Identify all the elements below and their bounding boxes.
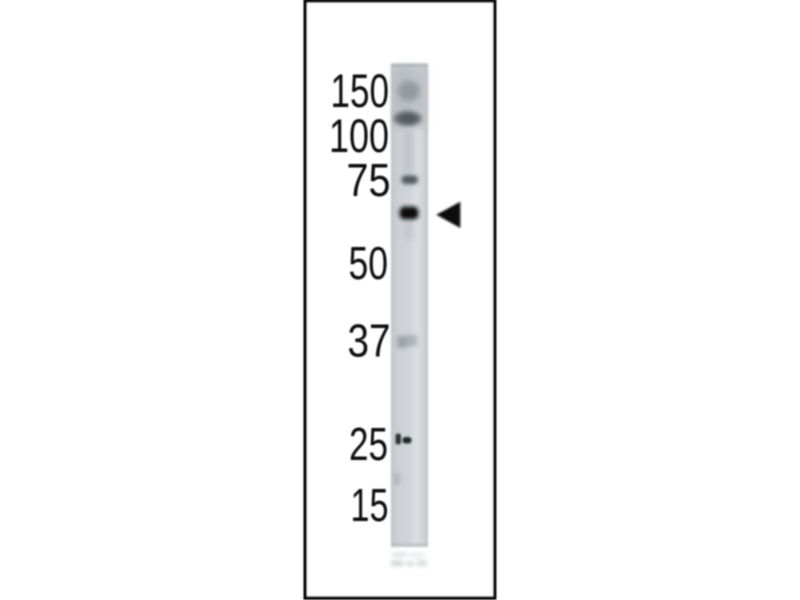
svg-text:50: 50 <box>349 237 389 289</box>
svg-text:15: 15 <box>351 479 389 531</box>
svg-text:37: 37 <box>348 315 391 367</box>
svg-text:25: 25 <box>349 418 388 470</box>
svg-text:75: 75 <box>347 154 391 206</box>
